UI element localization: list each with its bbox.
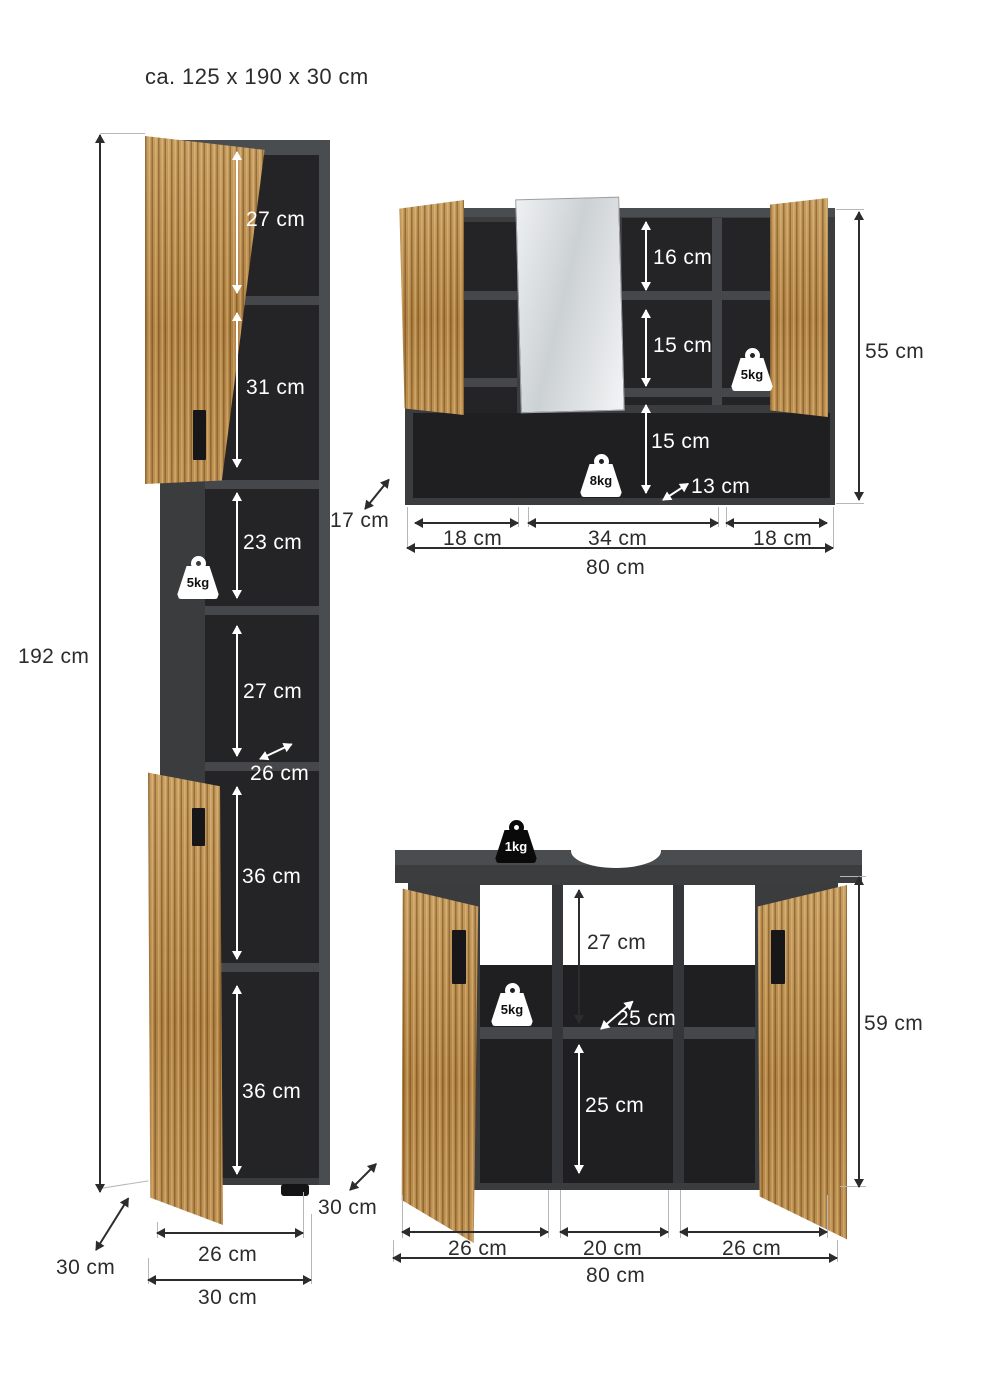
- sink-cabinet-left-door: [390, 885, 480, 1243]
- sink-cabinet: 1kg 5kg 27 cm 25 cm 25 cm 59 cm 30 cm 26…: [0, 0, 993, 1400]
- dim-arrow-diagonal: [349, 1163, 377, 1191]
- sink-cabinet-divider: [673, 885, 684, 1183]
- dim-arrow: [393, 1257, 837, 1259]
- sink-height-label: 59 cm: [864, 1012, 923, 1036]
- furniture-dimension-diagram: ca. 125 x 190 x 30 cm 27 cm 31 cm 23 cm …: [0, 0, 993, 1400]
- weight-capacity-badge: 5kg: [490, 983, 534, 1026]
- dim-arrow: [578, 890, 580, 1023]
- dim-arrow: [680, 1231, 827, 1233]
- sink-cabinet-divider: [552, 885, 563, 1183]
- sink-pipe-cutout: [571, 834, 661, 868]
- dim-arrow: [560, 1231, 668, 1233]
- sink-cabinet-right-door: [755, 885, 847, 1243]
- sink-total-width-label: 80 cm: [586, 1264, 645, 1288]
- sink-lower-height-label: 25 cm: [585, 1094, 644, 1118]
- weight-capacity-badge: 1kg: [494, 820, 538, 863]
- sink-depth-label: 30 cm: [318, 1196, 377, 1220]
- sink-cabinet-left-door-handle: [452, 930, 466, 984]
- sink-upper-height-label: 27 cm: [587, 931, 646, 955]
- weight-label: 1kg: [494, 830, 538, 863]
- weight-label: 5kg: [490, 993, 534, 1026]
- dim-arrow: [578, 1045, 580, 1173]
- dim-arrow: [402, 1231, 548, 1233]
- sink-cabinet-right-door-handle: [771, 930, 785, 984]
- sink-height-dim-arrow: [858, 877, 860, 1187]
- sink-inner-depth-label: 25 cm: [617, 1007, 676, 1031]
